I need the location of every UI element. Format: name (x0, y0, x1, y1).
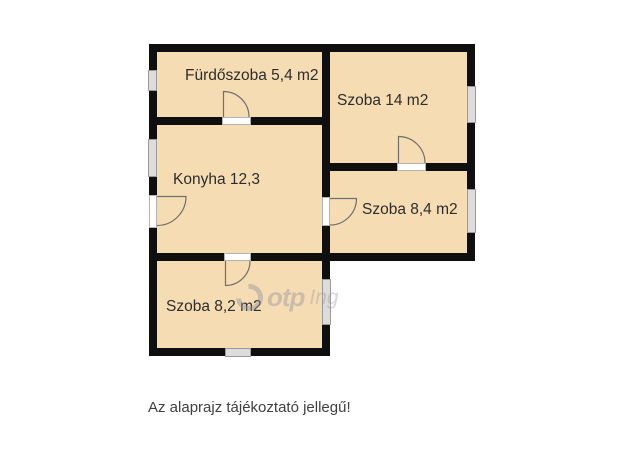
room-label-room14: Szoba 14 m2 (337, 92, 428, 110)
wall-top (149, 44, 475, 52)
room-fill-right-column (322, 44, 475, 261)
window-kitchen-west-icon (148, 139, 157, 177)
watermark-suffix: Ing (309, 286, 338, 310)
door-opening-room82 (224, 253, 251, 261)
window-room82-south-icon (225, 348, 251, 357)
otp-swirl-icon (230, 278, 268, 316)
room-label-room84: Szoba 8,4 m2 (362, 201, 458, 219)
watermark-brand: otp (267, 282, 304, 313)
disclaimer-text: Az alaprajz tájékoztató jellegű! (148, 399, 351, 416)
door-opening-kitchen-entry (149, 195, 157, 228)
window-room14-east-icon (467, 86, 476, 123)
window-bathroom-west-icon (148, 70, 157, 91)
door-opening-room14 (397, 163, 426, 171)
watermark: otp Ing (236, 282, 339, 313)
door-opening-room84 (322, 197, 330, 226)
room-label-bathroom: Fürdőszoba 5,4 m2 (185, 67, 319, 85)
door-opening-bathroom (222, 117, 251, 125)
wall-kitchen-room82-and-room84-bottom (149, 253, 475, 261)
window-room84-east-icon (467, 189, 476, 233)
floorplan-canvas: Fürdőszoba 5,4 m2 Szoba 14 m2 Konyha 12,… (0, 0, 640, 452)
room-label-kitchen: Konyha 12,3 (173, 171, 260, 189)
